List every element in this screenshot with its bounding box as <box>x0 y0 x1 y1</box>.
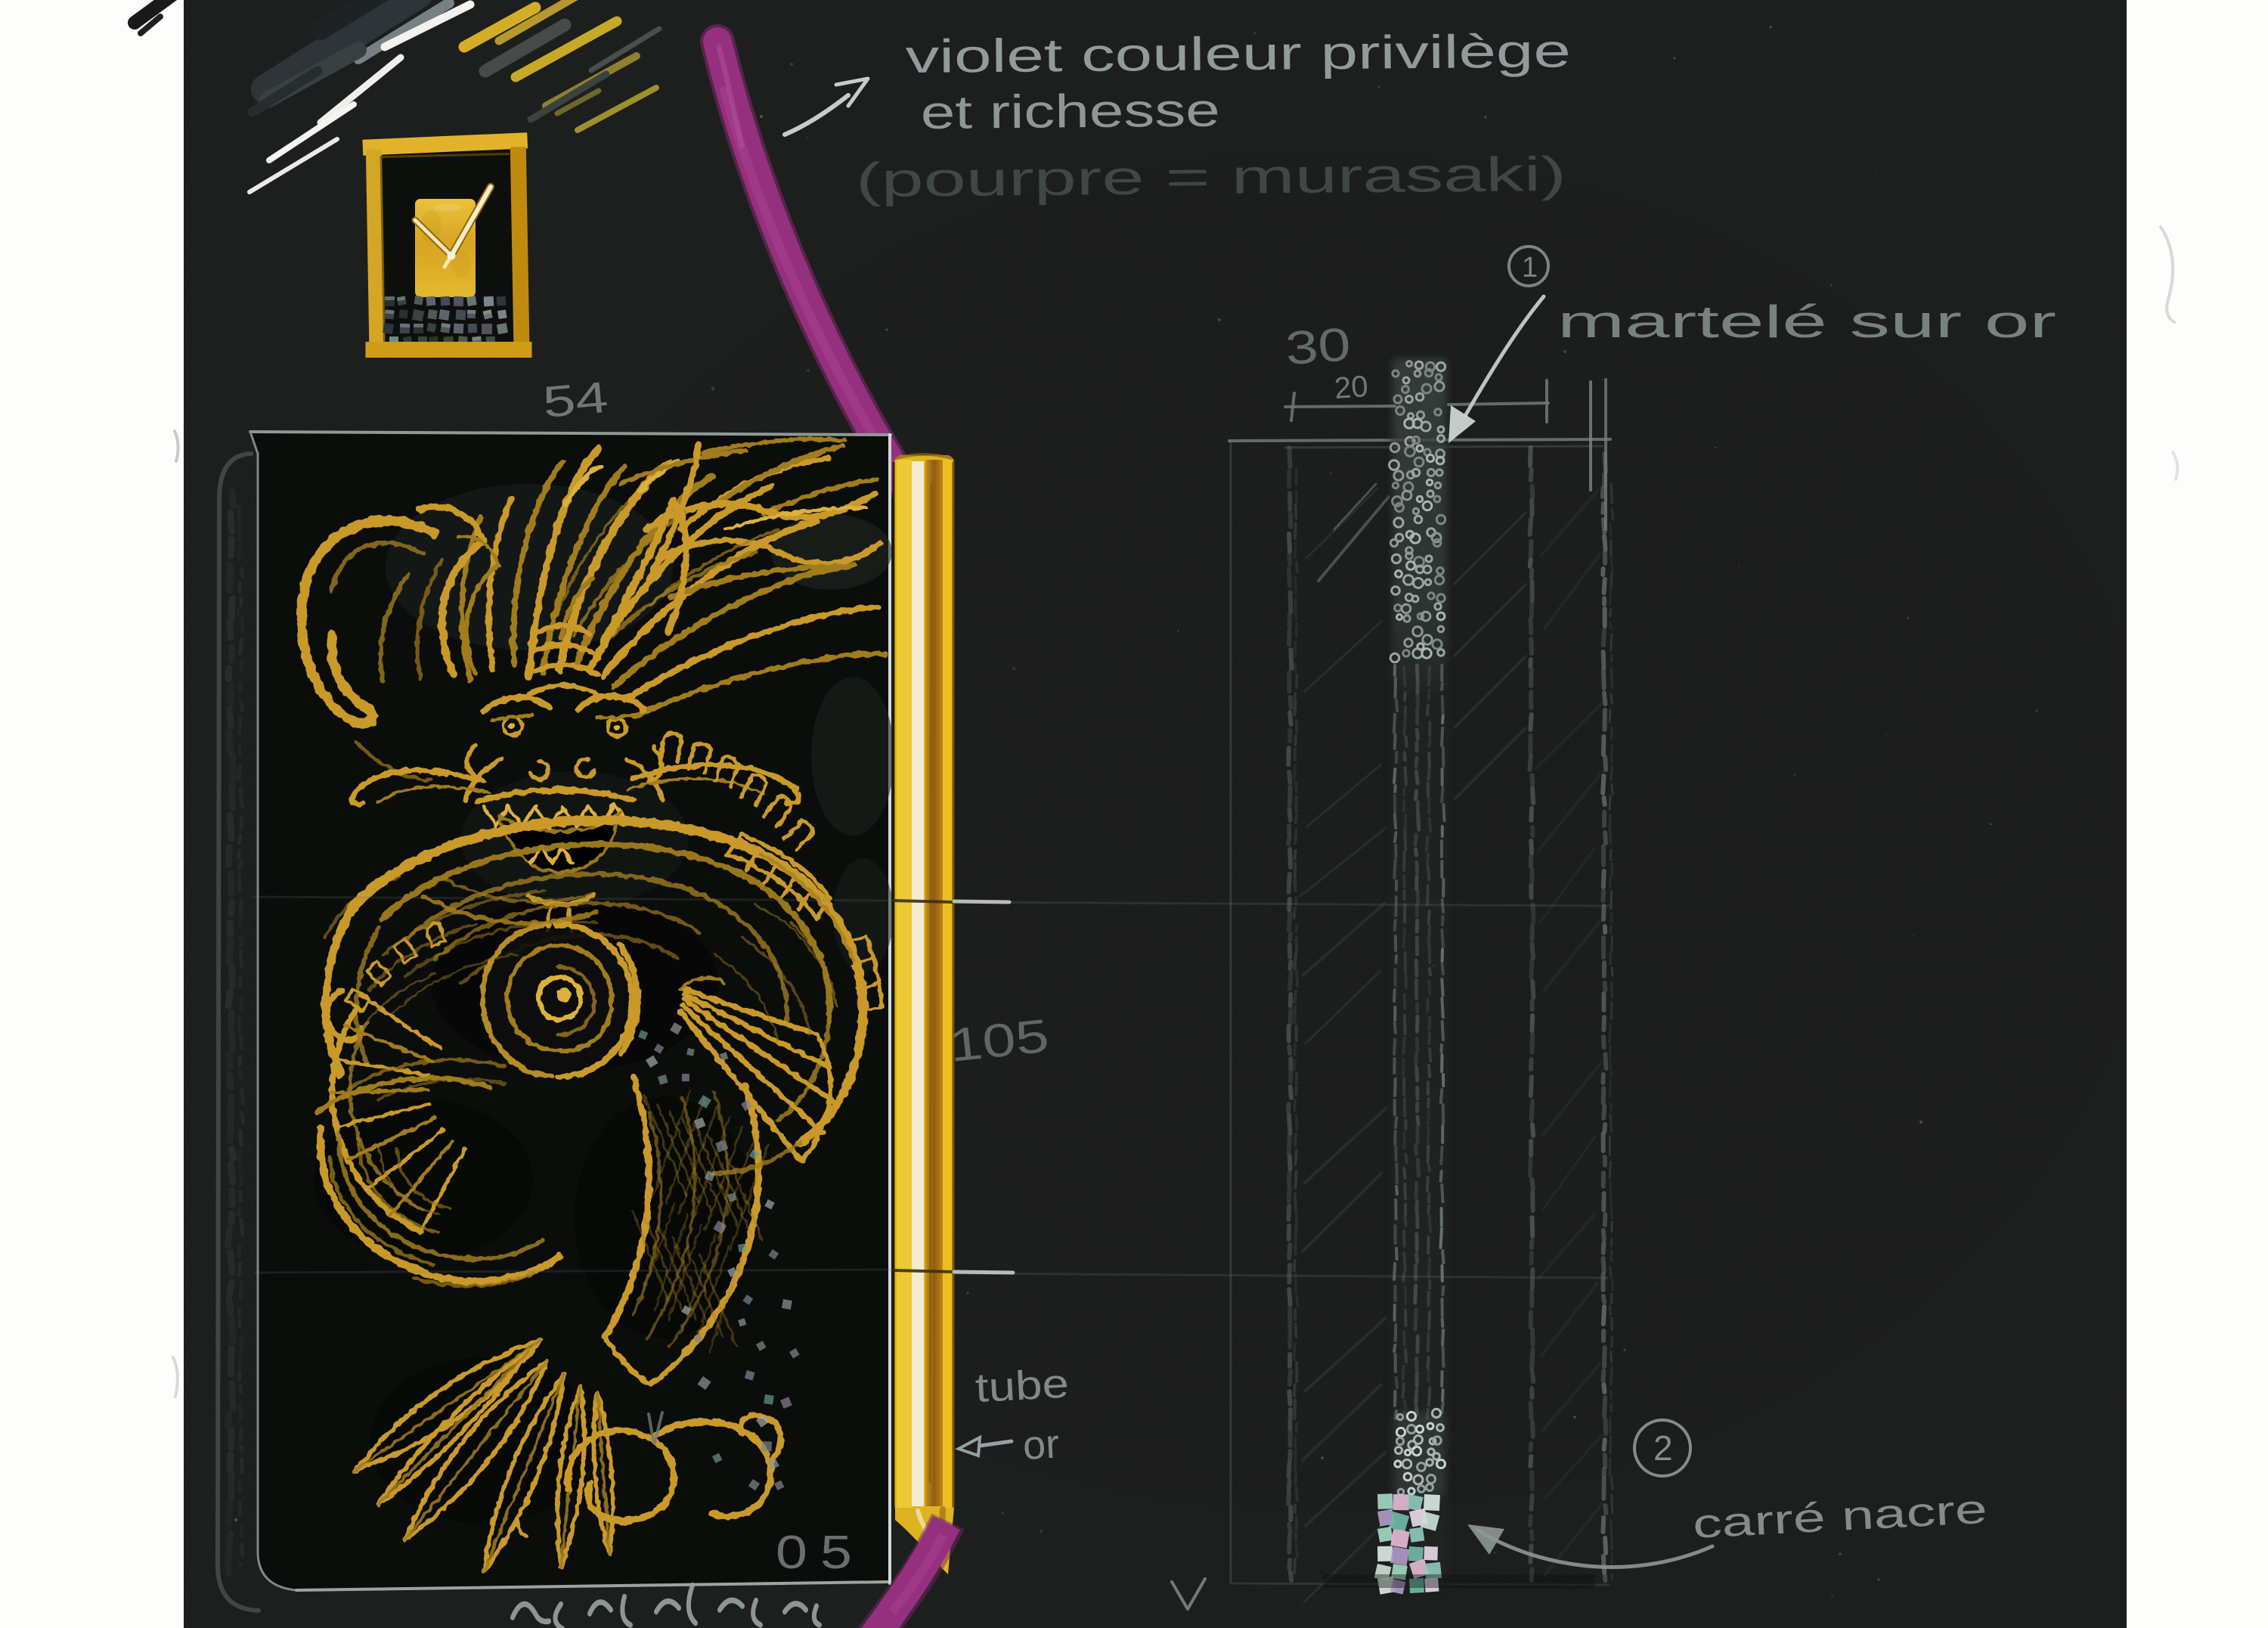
svg-text:tube: tube <box>974 1361 1070 1411</box>
svg-text:05: 05 <box>776 1527 865 1579</box>
svg-text:violet couleur privilège: violet couleur privilège <box>906 25 1572 83</box>
svg-text:or: or <box>1021 1422 1060 1468</box>
svg-text:martelé sur or: martelé sur or <box>1557 296 2056 347</box>
svg-text:1: 1 <box>1522 252 1538 284</box>
svg-text:20: 20 <box>1334 370 1369 405</box>
svg-text:30: 30 <box>1284 318 1352 375</box>
svg-text:et richesse: et richesse <box>921 85 1221 139</box>
svg-text:2: 2 <box>1653 1428 1673 1468</box>
svg-text:54: 54 <box>541 373 609 427</box>
svg-text:(pourpre = murasaki): (pourpre = murasaki) <box>855 147 1566 207</box>
svg-text:105: 105 <box>947 1010 1051 1072</box>
